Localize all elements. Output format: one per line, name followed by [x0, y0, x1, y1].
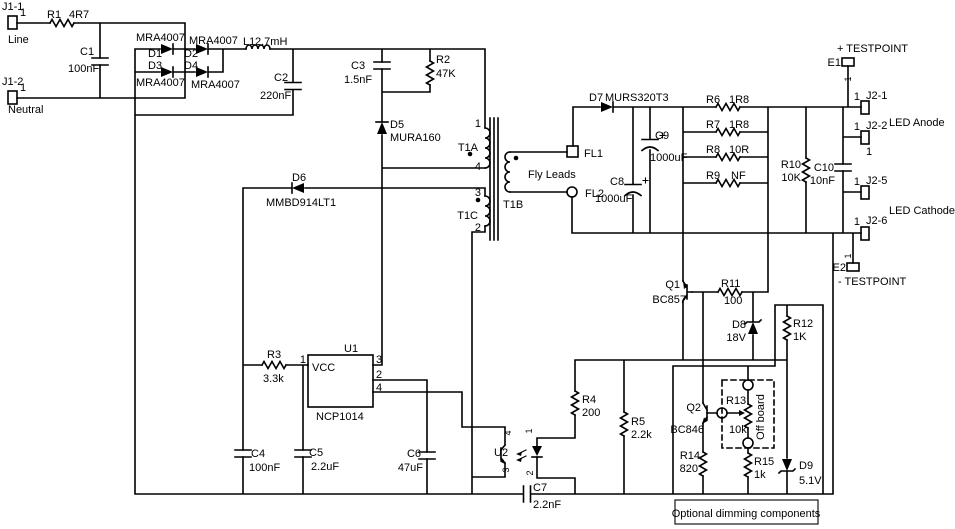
label-t1c-pin3: 3: [475, 187, 481, 199]
label-dimming: Optional dimming components: [672, 508, 821, 520]
label-j1-1-pin: 1: [20, 7, 26, 19]
label-r12-value: 1K: [793, 331, 807, 343]
label-u2-pin4: 4: [503, 430, 513, 435]
label-c9: C9: [655, 130, 669, 142]
label-r11-value: 100: [724, 295, 742, 307]
label-c3: C3: [351, 60, 365, 72]
label-e1: E1: [828, 57, 841, 69]
label-u1-vcc: VCC: [312, 362, 335, 374]
label-r9-value: NF: [731, 170, 746, 182]
label-r10-value: 10K: [781, 172, 801, 184]
label-d5-value: MURA160: [390, 132, 441, 144]
label-u1-pin4: 4: [376, 382, 382, 394]
label-j2-2-pin: 1: [854, 121, 860, 133]
label-c7: C7: [533, 482, 547, 494]
label-led-anode: LED Anode: [889, 117, 945, 129]
label-c10-value: 10nF: [810, 175, 835, 187]
circuit-schematic: J1-1 1 Line J1-2 1 Neutral R1 4R7 C1 100…: [0, 0, 955, 529]
label-u2-pin2: 2: [525, 470, 535, 475]
label-r2: R2: [436, 54, 450, 66]
label-c9-value: 1000uF: [650, 152, 688, 164]
label-u1-pin2: 2: [376, 369, 382, 381]
label-l1: L1: [243, 36, 255, 48]
label-e1-pin: 1: [843, 76, 853, 81]
label-led-cathode: LED Cathode: [889, 205, 955, 217]
label-e2-pin: 1: [843, 253, 853, 258]
label-j2-6: J2-6: [866, 215, 887, 227]
label-d8-value: 18V: [726, 332, 746, 344]
label-j2-2: J2-2: [866, 120, 887, 132]
label-d3-value: MRA4007: [136, 77, 185, 89]
label-r15: R15: [754, 456, 774, 468]
label-r5: R5: [631, 416, 645, 428]
label-d6-value: MMBD914LT1: [266, 197, 336, 209]
label-u1-pin1: 1: [300, 354, 306, 366]
label-c4-value: 100nF: [249, 462, 280, 474]
label-d5: D5: [390, 119, 404, 131]
label-c6: C6: [407, 448, 421, 460]
label-r10: R10: [781, 159, 801, 171]
label-r6: R6: [706, 94, 720, 106]
label-r8-value: 10R: [729, 144, 749, 156]
label-u2-pin1: 1: [524, 428, 534, 433]
label-r12: R12: [793, 318, 813, 330]
label-u2-pin3: 3: [501, 467, 511, 472]
label-c5: C5: [309, 447, 323, 459]
label-neutral: Neutral: [8, 104, 43, 116]
label-c6-value: 47uF: [398, 462, 423, 474]
label-c8-value: 1000uF: [595, 193, 633, 205]
label-d6: D6: [292, 172, 306, 184]
label-d8: D8: [732, 319, 746, 331]
label-c2-value: 220nF: [260, 90, 291, 102]
label-c3-value: 1.5nF: [344, 74, 372, 86]
label-r5-value: 2.2k: [631, 429, 652, 441]
label-j2-2-pin2: 1: [866, 146, 872, 158]
label-fly-leads: Fly Leads: [528, 169, 576, 181]
label-c5-value: 2.2uF: [311, 461, 339, 473]
label-u1-part: NCP1014: [316, 411, 364, 423]
label-u1-pin3: 3: [376, 354, 382, 366]
label-j2-5-pin: 1: [854, 176, 860, 188]
label-r13: R13: [726, 395, 746, 407]
label-r9: R9: [706, 170, 720, 182]
label-t1c: T1C: [457, 210, 478, 222]
label-e1-testpoint: + TESTPOINT: [837, 43, 908, 55]
label-fl1: FL1: [584, 148, 603, 160]
label-off-board: Off board: [755, 394, 767, 440]
label-r1-value: 4R7: [69, 9, 89, 21]
label-u1: U1: [344, 343, 358, 355]
label-e2-testpoint: - TESTPOINT: [838, 276, 907, 288]
label-r11: R11: [721, 278, 740, 290]
label-d9-value: 5.1V: [799, 475, 822, 487]
label-j2-6-pin: 1: [854, 216, 860, 228]
label-d1: D1: [148, 48, 162, 60]
label-t1a-pin1: 1: [475, 118, 481, 130]
label-r13-value: 10k: [729, 424, 747, 436]
label-e2: E2: [833, 262, 846, 274]
label-c8: C8: [610, 176, 624, 188]
label-d7: D7: [589, 92, 603, 104]
label-r3: R3: [267, 349, 281, 361]
label-d4: D4: [184, 60, 198, 72]
label-r2-value: 47K: [436, 68, 456, 80]
label-t1c-pin2: 2: [475, 222, 481, 234]
label-c10: C10: [814, 162, 834, 174]
label-r15-value: 1k: [754, 469, 766, 481]
label-r4: R4: [582, 394, 596, 406]
label-j2-5: J2-5: [866, 175, 887, 187]
label-c1: C1: [80, 46, 94, 58]
label-d4-value: MRA4007: [191, 79, 240, 91]
label-c1-value: 100nF: [68, 63, 99, 75]
label-q1-value: BC857: [652, 294, 686, 306]
label-q2-value: BC846: [670, 424, 704, 436]
label-r4-value: 200: [582, 407, 600, 419]
label-r14-value: 820: [680, 463, 698, 475]
label-t1a: T1A: [458, 142, 479, 154]
label-d2-value: MRA4007: [189, 35, 238, 47]
label-t1b: T1B: [503, 199, 523, 211]
label-j2-1: J2-1: [866, 90, 887, 102]
label-d7-value: MURS320T3: [605, 92, 669, 104]
label-u2: U2: [494, 447, 508, 459]
label-j1-2-pin: 1: [20, 82, 26, 94]
label-d9: D9: [799, 460, 813, 472]
label-j2-1-pin: 1: [854, 91, 860, 103]
label-l1-value: 2.7mH: [255, 36, 287, 48]
label-r3-value: 3.3k: [263, 373, 284, 385]
label-d3: D3: [148, 60, 162, 72]
label-r6-value: 1R8: [729, 94, 749, 106]
label-c2: C2: [274, 72, 288, 84]
label-r8: R8: [706, 144, 720, 156]
label-c4: C4: [251, 448, 265, 460]
label-c7-value: 2.2nF: [533, 499, 561, 511]
label-r1: R1: [47, 9, 61, 21]
label-r7: R7: [706, 119, 720, 131]
label-r14: R14: [680, 450, 700, 462]
label-d1-value: MRA4007: [136, 32, 185, 44]
label-q1: Q1: [665, 279, 680, 291]
label-d2: D2: [184, 48, 198, 60]
label-r7-value: 1R8: [729, 119, 749, 131]
label-line: Line: [8, 34, 29, 46]
label-q2: Q2: [686, 402, 701, 414]
dot-t1b: [514, 156, 519, 161]
schematic-page: J1-1 1 Line J1-2 1 Neutral R1 4R7 C1 100…: [0, 0, 955, 529]
label-t1a-pin4: 4: [475, 161, 481, 173]
